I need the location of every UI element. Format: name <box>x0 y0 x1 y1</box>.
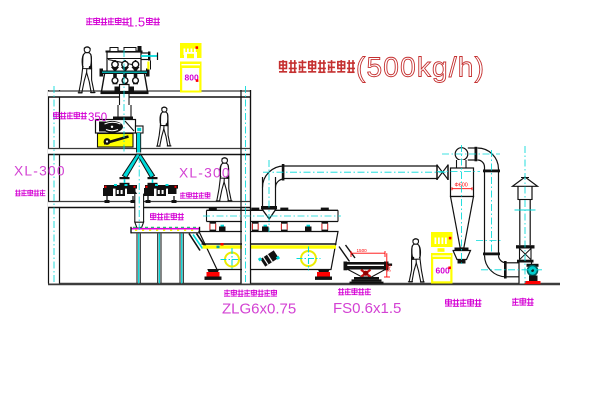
svg-text:ZLG6x0.75: ZLG6x0.75 <box>222 301 296 318</box>
svg-text:XL-300: XL-300 <box>14 164 66 179</box>
svg-text:600: 600 <box>436 266 450 276</box>
svg-text:345: 345 <box>387 264 392 272</box>
svg-text:(500kg/h): (500kg/h) <box>356 52 485 83</box>
svg-text:XL-300: XL-300 <box>179 166 231 181</box>
svg-text:FS0.6x1.5: FS0.6x1.5 <box>333 300 401 317</box>
svg-text:1500: 1500 <box>357 248 368 253</box>
svg-text:1.5: 1.5 <box>127 15 145 30</box>
svg-text:350: 350 <box>88 112 107 124</box>
